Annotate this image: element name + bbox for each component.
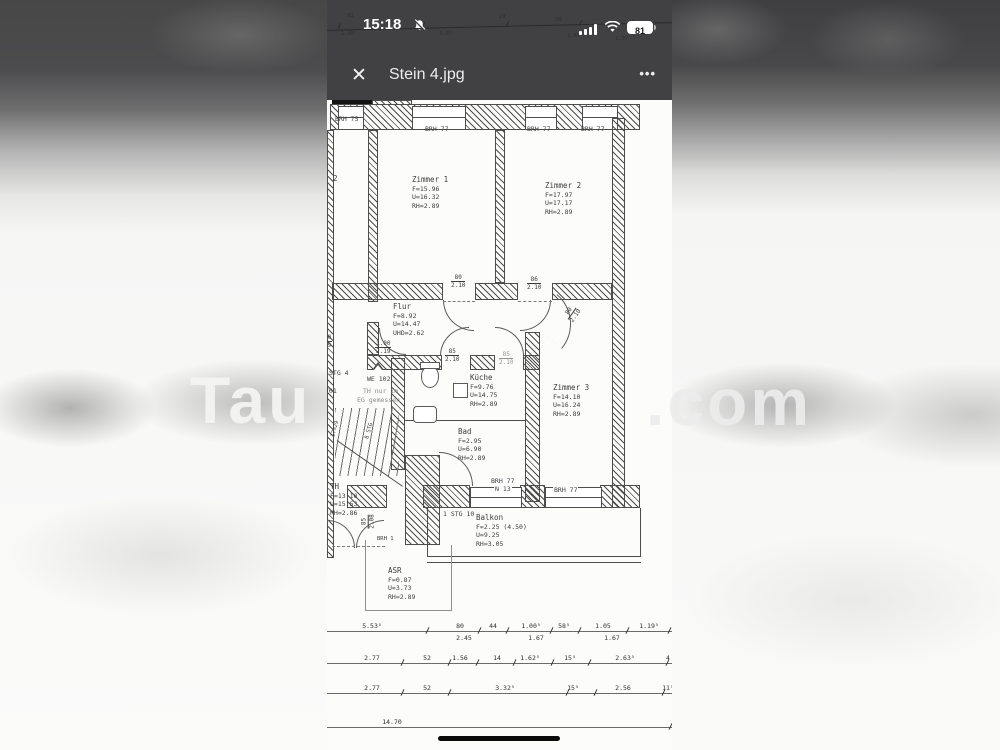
dimension-value: 80 <box>456 622 464 630</box>
dimension-value: 52 <box>423 654 431 662</box>
floorplan-image[interactable]: Zimmer 1F=15.96U=16.32RH=2.89 Zimmer 2F=… <box>327 0 672 750</box>
misc-label: TH nur im <box>363 387 398 395</box>
door-arc <box>443 300 474 331</box>
dimension-value: 1.62⁵ <box>520 654 540 662</box>
asr-wall <box>365 540 366 610</box>
home-indicator[interactable] <box>438 736 560 741</box>
dimension-value: 15⁵ <box>567 684 579 692</box>
triangle-symbol <box>372 362 384 370</box>
dimension-value: 1.19⁵ <box>639 622 659 630</box>
dimension-value: 1.67 <box>604 634 620 642</box>
wall-corridor-top <box>332 283 443 300</box>
door-swing-dash <box>327 546 385 547</box>
balcony-side <box>427 508 428 557</box>
door-label: 852.08 <box>361 514 376 528</box>
window-label: N 13 <box>494 485 512 493</box>
wall-balcony <box>520 485 545 508</box>
misc-label: 2 <box>333 174 338 183</box>
room-label-balkon: BalkonF=2.25 (4.50)U=9.25RH=3.05 <box>476 514 527 548</box>
dimension-value: 14 <box>493 654 501 662</box>
dimension-value: 1.00⁵ <box>521 622 541 630</box>
misc-label: EG gemessen <box>357 396 400 404</box>
door-swing-dash <box>518 301 552 302</box>
wall-corridor-top <box>475 283 518 300</box>
dimension-value: 2.77 <box>364 654 380 662</box>
dimension-value: 1.56 <box>452 654 468 662</box>
wall-balcony <box>600 485 640 508</box>
washbasin-icon <box>413 406 437 423</box>
wall-balcony <box>423 485 470 508</box>
door-label: 862.10 <box>527 276 541 291</box>
dimension-value: 2.56 <box>615 684 631 692</box>
asr-wall <box>365 610 452 611</box>
room-label-kueche: KücheF=9.76U=14.75RH=2.89 <box>470 374 497 408</box>
door-label: 1.002.19 <box>375 340 391 355</box>
misc-label: WE 102 <box>367 375 390 383</box>
window-label: BRH 77 <box>425 125 448 133</box>
room-label-zimmer-2: Zimmer 2F=17.97U=17.17RH=2.89 <box>545 182 581 216</box>
misc-label: 1 STG 10 <box>443 510 474 518</box>
balcony-side <box>640 508 641 557</box>
dimension-line <box>327 663 672 664</box>
wall-corridor-bottom <box>470 355 495 370</box>
balcony-edge <box>427 556 641 557</box>
door-label: 852.10 <box>499 351 513 366</box>
room-label-asr: ASRF=0.87U=3.73RH=2.89 <box>388 567 415 601</box>
toilet-icon <box>421 366 439 388</box>
window-label: BRH 77 <box>527 125 550 133</box>
dimension-value: 5.53⁵ <box>362 622 382 630</box>
dimension-value: 58⁵ <box>558 622 570 630</box>
dimension-value: 44 <box>489 622 497 630</box>
sink-icon <box>453 383 468 398</box>
door-label: 802.10 <box>451 274 465 289</box>
room-label-bad: BadF=2.95U=6.90RH=2.89 <box>458 428 485 462</box>
blurred-backdrop-left <box>0 0 327 750</box>
dimension-value: 2.77 <box>364 684 380 692</box>
room-label-flur: FlurF=8.92U=14.47UHD=2.62 <box>393 303 424 337</box>
room-label-zimmer-3: Zimmer 3F=14.10U=16.24RH=2.89 <box>553 384 589 418</box>
dimension-value: 1.67 <box>528 634 544 642</box>
window-label: BRH 77 <box>490 477 515 485</box>
wall <box>495 130 505 283</box>
dimension-line <box>327 631 672 632</box>
dimension-value: 3.32⁵ <box>495 684 515 692</box>
room-label-th: THF=13.10U=15.53RH=2.86 <box>330 483 357 517</box>
toilet-tank-icon <box>420 362 440 369</box>
dimension-value: 2.63⁵ <box>615 654 635 662</box>
dimension-line <box>327 693 672 694</box>
dimension-value: 1.05 <box>595 622 611 630</box>
asr-wall <box>451 545 452 610</box>
wall-right-outer <box>612 118 625 508</box>
door-swing-dash <box>443 301 475 302</box>
window-label: BRH 77 <box>553 486 578 494</box>
dimension-value: 15⁵ <box>564 654 576 662</box>
dimension-value: 14.70 <box>382 718 402 726</box>
window-label: BRH 1 <box>377 536 394 542</box>
dimension-value: 2.45 <box>456 634 472 642</box>
door-label: 852.10 <box>445 348 459 363</box>
staircase <box>335 408 399 476</box>
misc-label: STG 4 <box>329 369 349 377</box>
entrance-door-arc <box>327 520 355 548</box>
wall-kitchen-right <box>525 332 540 502</box>
wall <box>368 130 378 302</box>
door-label: 0019 <box>327 334 332 349</box>
window-label: BRH 77 <box>581 125 604 133</box>
misc-label: 701 <box>327 387 337 395</box>
blurred-backdrop-right <box>672 0 1000 750</box>
balcony-edge <box>427 562 641 563</box>
room-label-zimmer-1: Zimmer 1F=15.96U=16.32RH=2.89 <box>412 176 448 210</box>
dimension-value: 52 <box>423 684 431 692</box>
phone-screenshot: 91 29 96 1.48 1.87 1.67 1.57 15:18 81 ✕ … <box>327 0 672 750</box>
dimension-line <box>327 727 672 728</box>
window-label: BRH 75 <box>335 115 358 123</box>
